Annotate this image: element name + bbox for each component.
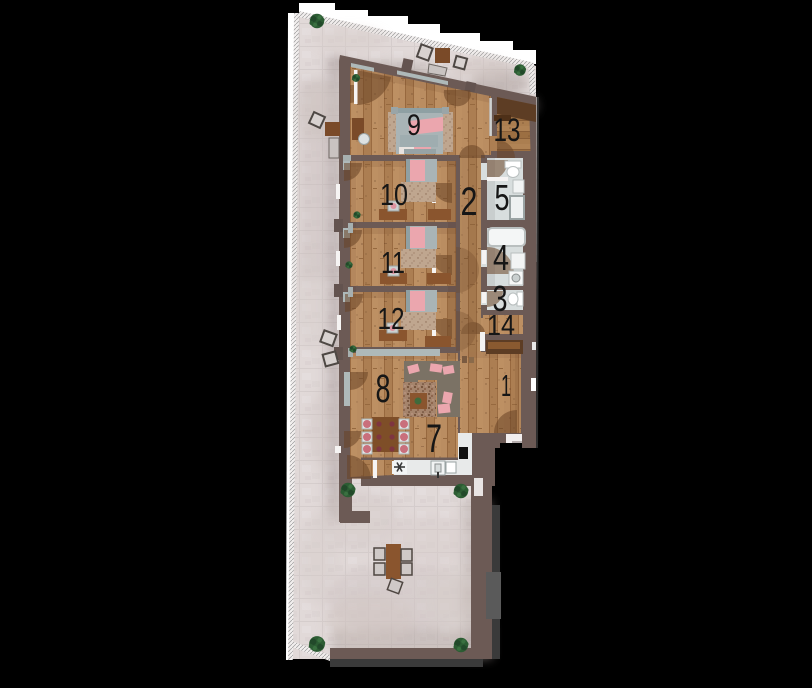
- svg-text:7: 7: [426, 417, 442, 461]
- svg-text:12: 12: [378, 301, 405, 336]
- svg-text:9: 9: [407, 109, 421, 142]
- svg-text:10: 10: [380, 177, 408, 212]
- svg-text:1: 1: [501, 368, 511, 403]
- svg-text:8: 8: [376, 367, 391, 411]
- svg-text:2: 2: [461, 180, 478, 224]
- svg-text:13: 13: [494, 112, 521, 148]
- svg-text:5: 5: [495, 177, 510, 218]
- svg-text:14: 14: [487, 310, 515, 342]
- svg-text:11: 11: [381, 245, 405, 280]
- svg-text:4: 4: [493, 237, 509, 278]
